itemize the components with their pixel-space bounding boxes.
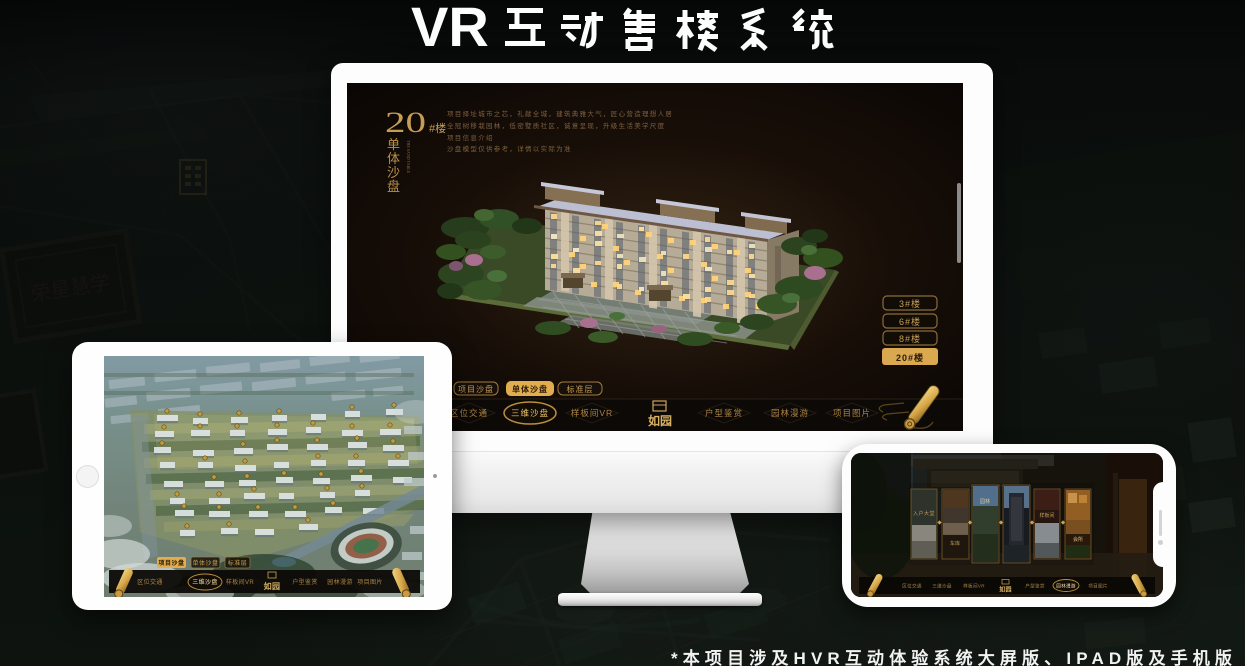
svg-text:区位交通: 区位交通 <box>450 408 488 418</box>
svg-text:项目择址城市之芯，礼献全城，建筑典雅大气，匠心营造理想人居: 项目择址城市之芯，礼献全城，建筑典雅大气，匠心营造理想人居 <box>447 109 673 118</box>
svg-text:项目图片: 项目图片 <box>833 408 871 418</box>
svg-text:标准层: 标准层 <box>228 559 248 567</box>
svg-text:20#楼: 20#楼 <box>896 352 924 363</box>
svg-text:沙: 沙 <box>387 165 400 180</box>
svg-text:户型鉴赏: 户型鉴赏 <box>292 578 318 586</box>
svg-text:区位交通: 区位交通 <box>137 578 163 586</box>
svg-text:三维沙盘: 三维沙盘 <box>932 583 952 590</box>
svg-text:样板间VR: 样板间VR <box>226 578 255 586</box>
svg-text:三维沙盘: 三维沙盘 <box>192 578 218 586</box>
svg-text:VR: VR <box>411 1 489 55</box>
svg-text:户型鉴赏: 户型鉴赏 <box>1025 583 1045 590</box>
svg-text:THE SAND TABLE: THE SAND TABLE <box>406 140 411 174</box>
svg-text:单体沙盘: 单体沙盘 <box>192 559 218 567</box>
svg-text:项目沙盘: 项目沙盘 <box>458 384 494 394</box>
svg-text:项目图片: 项目图片 <box>357 578 383 586</box>
svg-text:6#楼: 6#楼 <box>899 316 921 327</box>
svg-text:盘: 盘 <box>387 179 400 194</box>
svg-text:项目图片: 项目图片 <box>1088 583 1108 590</box>
svg-text:标准层: 标准层 <box>567 384 594 394</box>
svg-text:20: 20 <box>385 106 426 139</box>
svg-text:沙盘模型仅供参考，详情以实际为准: 沙盘模型仅供参考，详情以实际为准 <box>447 144 572 153</box>
svg-text:户型鉴赏: 户型鉴赏 <box>705 408 743 418</box>
svg-text:全冠树移栽园林，低密墅质社区，诚意呈现，升级生活美学尺度: 全冠树移栽园林，低密墅质社区，诚意呈现，升级生活美学尺度 <box>447 121 665 130</box>
svg-text:如园: 如园 <box>264 581 281 591</box>
svg-text:项目沙盘: 项目沙盘 <box>158 559 184 567</box>
svg-text:园林漫游: 园林漫游 <box>771 408 809 418</box>
svg-text:如园: 如园 <box>648 413 672 428</box>
svg-text:区位交通: 区位交通 <box>902 583 922 590</box>
svg-text:8#楼: 8#楼 <box>899 333 921 344</box>
svg-text:三维沙盘: 三维沙盘 <box>511 408 549 418</box>
svg-text:园林漫游: 园林漫游 <box>327 578 353 586</box>
svg-text:3#楼: 3#楼 <box>899 298 921 309</box>
svg-text:样板间VR: 样板间VR <box>571 408 613 418</box>
svg-text:单体沙盘: 单体沙盘 <box>512 384 548 394</box>
svg-text:样板间VR: 样板间VR <box>963 583 985 590</box>
svg-text:如园: 如园 <box>999 586 1012 594</box>
svg-text:单: 单 <box>387 137 400 152</box>
svg-text:#楼: #楼 <box>429 121 446 135</box>
svg-text:项目信息介绍: 项目信息介绍 <box>447 133 494 142</box>
svg-text:园林漫游: 园林漫游 <box>1056 583 1076 590</box>
svg-text:体: 体 <box>387 151 400 166</box>
